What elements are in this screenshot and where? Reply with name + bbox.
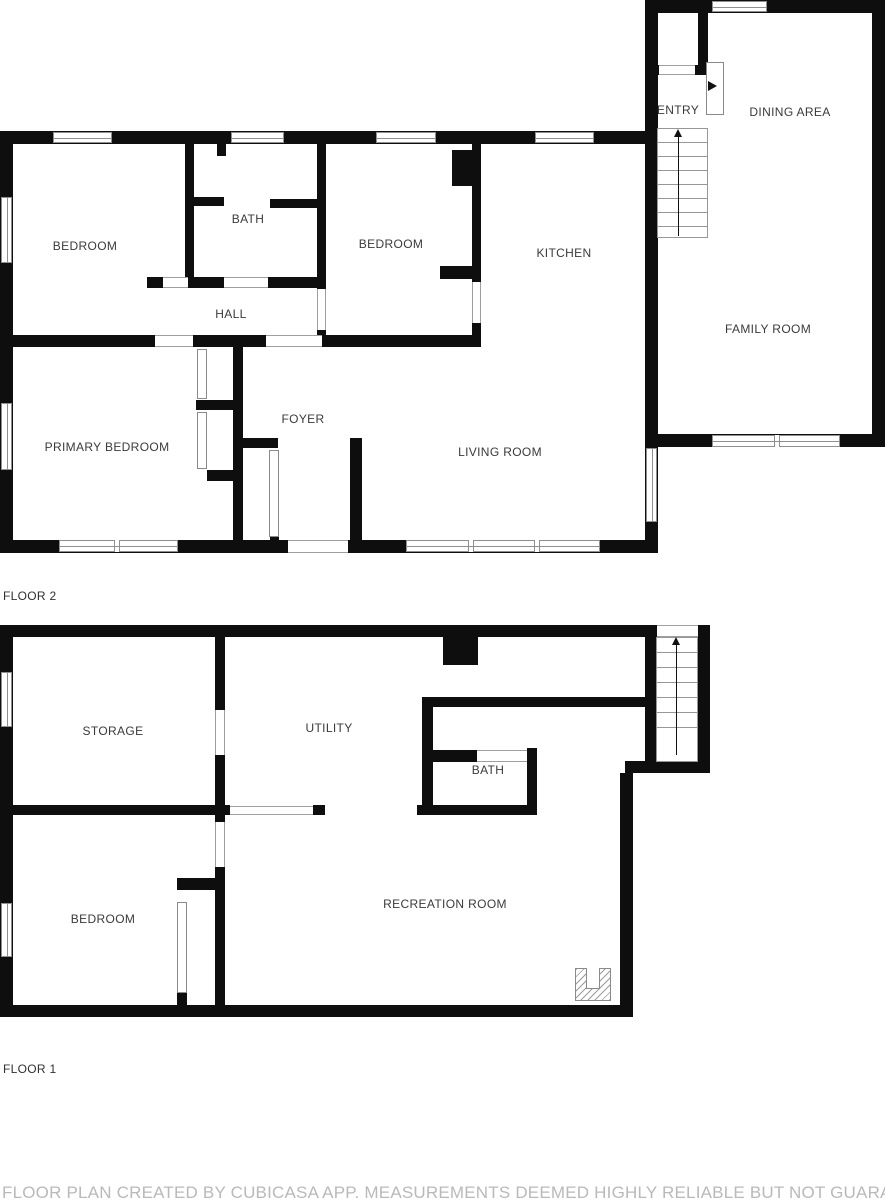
wall: [422, 697, 656, 707]
disclaimer-text: FLOOR PLAN CREATED BY CUBICASA APP. MEAS…: [2, 1183, 885, 1200]
fireplace-icon: [586, 968, 600, 989]
wall: [147, 277, 164, 288]
stair-opening: [657, 625, 698, 637]
door-opening: [224, 277, 268, 288]
wall: [417, 805, 537, 815]
room-label-storage: STORAGE: [83, 724, 144, 738]
room-label-primary: PRIMARY BEDROOM: [45, 440, 170, 454]
wall: [440, 266, 480, 279]
closet-door: [269, 450, 279, 537]
window: [406, 540, 600, 552]
door-opening: [317, 289, 326, 330]
wall: [527, 748, 537, 810]
wall: [322, 335, 477, 347]
chimney: [452, 150, 480, 186]
window: [712, 435, 840, 447]
window: [535, 132, 594, 143]
wall: [243, 438, 278, 448]
wall: [472, 323, 481, 347]
wall: [620, 773, 633, 1017]
wall: [625, 761, 710, 773]
staircase: [657, 128, 708, 238]
door-opening: [163, 277, 188, 288]
stairs-up-arrow-icon: [674, 129, 682, 137]
closet-door: [177, 902, 187, 993]
window: [1, 672, 12, 727]
room-label-hall: HALL: [215, 307, 246, 321]
wall: [188, 277, 224, 288]
wall: [872, 0, 885, 447]
window: [53, 132, 112, 143]
room-label-dining: DINING AREA: [749, 105, 830, 119]
room-label-bedroom1: BEDROOM: [53, 239, 117, 253]
wall: [193, 335, 266, 347]
window: [59, 540, 178, 552]
door-opening: [266, 335, 322, 347]
wall: [8, 335, 155, 347]
wall: [190, 197, 224, 206]
wall: [207, 470, 243, 481]
floor2-tag: FLOOR 2: [3, 589, 56, 603]
wall: [268, 277, 322, 288]
wall: [433, 750, 477, 762]
window: [1, 403, 12, 470]
room-label-kitchen: KITCHEN: [536, 246, 591, 260]
wall: [422, 707, 433, 810]
door-opening: [659, 65, 695, 75]
entry-door-arrow-icon: [708, 81, 717, 91]
closet-door: [197, 412, 207, 469]
wall: [270, 199, 320, 208]
wall: [185, 144, 194, 282]
room-label-bath-f1: BATH: [472, 763, 505, 777]
window: [376, 132, 436, 143]
floor-plan-page: BEDROOM BATH BEDROOM KITCHEN ENTRY DININ…: [0, 0, 885, 1200]
door-opening: [155, 335, 193, 347]
door-opening: [215, 822, 225, 867]
door-opening: [472, 282, 481, 323]
stairs-up-arrow-icon: [678, 136, 679, 236]
window: [1, 903, 12, 957]
room-label-recreation: RECREATION ROOM: [383, 897, 507, 911]
wall: [0, 1005, 633, 1017]
window: [712, 1, 767, 12]
wall: [270, 536, 279, 544]
wall: [196, 400, 243, 410]
wall: [313, 805, 325, 815]
staircase: [656, 637, 698, 762]
door-opening: [215, 710, 225, 755]
wall: [350, 438, 362, 541]
room-label-bedroom2: BEDROOM: [359, 237, 423, 251]
wall: [698, 625, 710, 773]
room-label-utility: UTILITY: [305, 721, 352, 735]
room-label-entry: ENTRY: [657, 103, 699, 117]
wall: [317, 144, 326, 289]
room-label-family: FAMILY ROOM: [725, 322, 811, 336]
room-label-foyer: FOYER: [281, 412, 324, 426]
room-label-living: LIVING ROOM: [458, 445, 542, 459]
closet-door: [197, 349, 207, 399]
window: [1, 197, 12, 263]
room-label-bath: BATH: [232, 212, 265, 226]
stairs-up-arrow-icon: [672, 637, 680, 645]
window: [231, 132, 284, 143]
railing: [230, 806, 313, 815]
wall: [177, 993, 187, 1005]
wall: [215, 637, 225, 710]
stairs-up-arrow-icon: [676, 645, 677, 755]
wall: [0, 805, 230, 815]
wall: [217, 144, 226, 156]
front-door-opening: [288, 540, 348, 553]
door-opening: [477, 750, 527, 762]
wall: [233, 347, 243, 541]
floor1-tag: FLOOR 1: [3, 1062, 56, 1076]
window: [646, 448, 657, 522]
room-label-bedroom-f1: BEDROOM: [71, 912, 135, 926]
wall: [177, 878, 223, 890]
chimney: [443, 632, 478, 665]
wall: [0, 625, 710, 637]
